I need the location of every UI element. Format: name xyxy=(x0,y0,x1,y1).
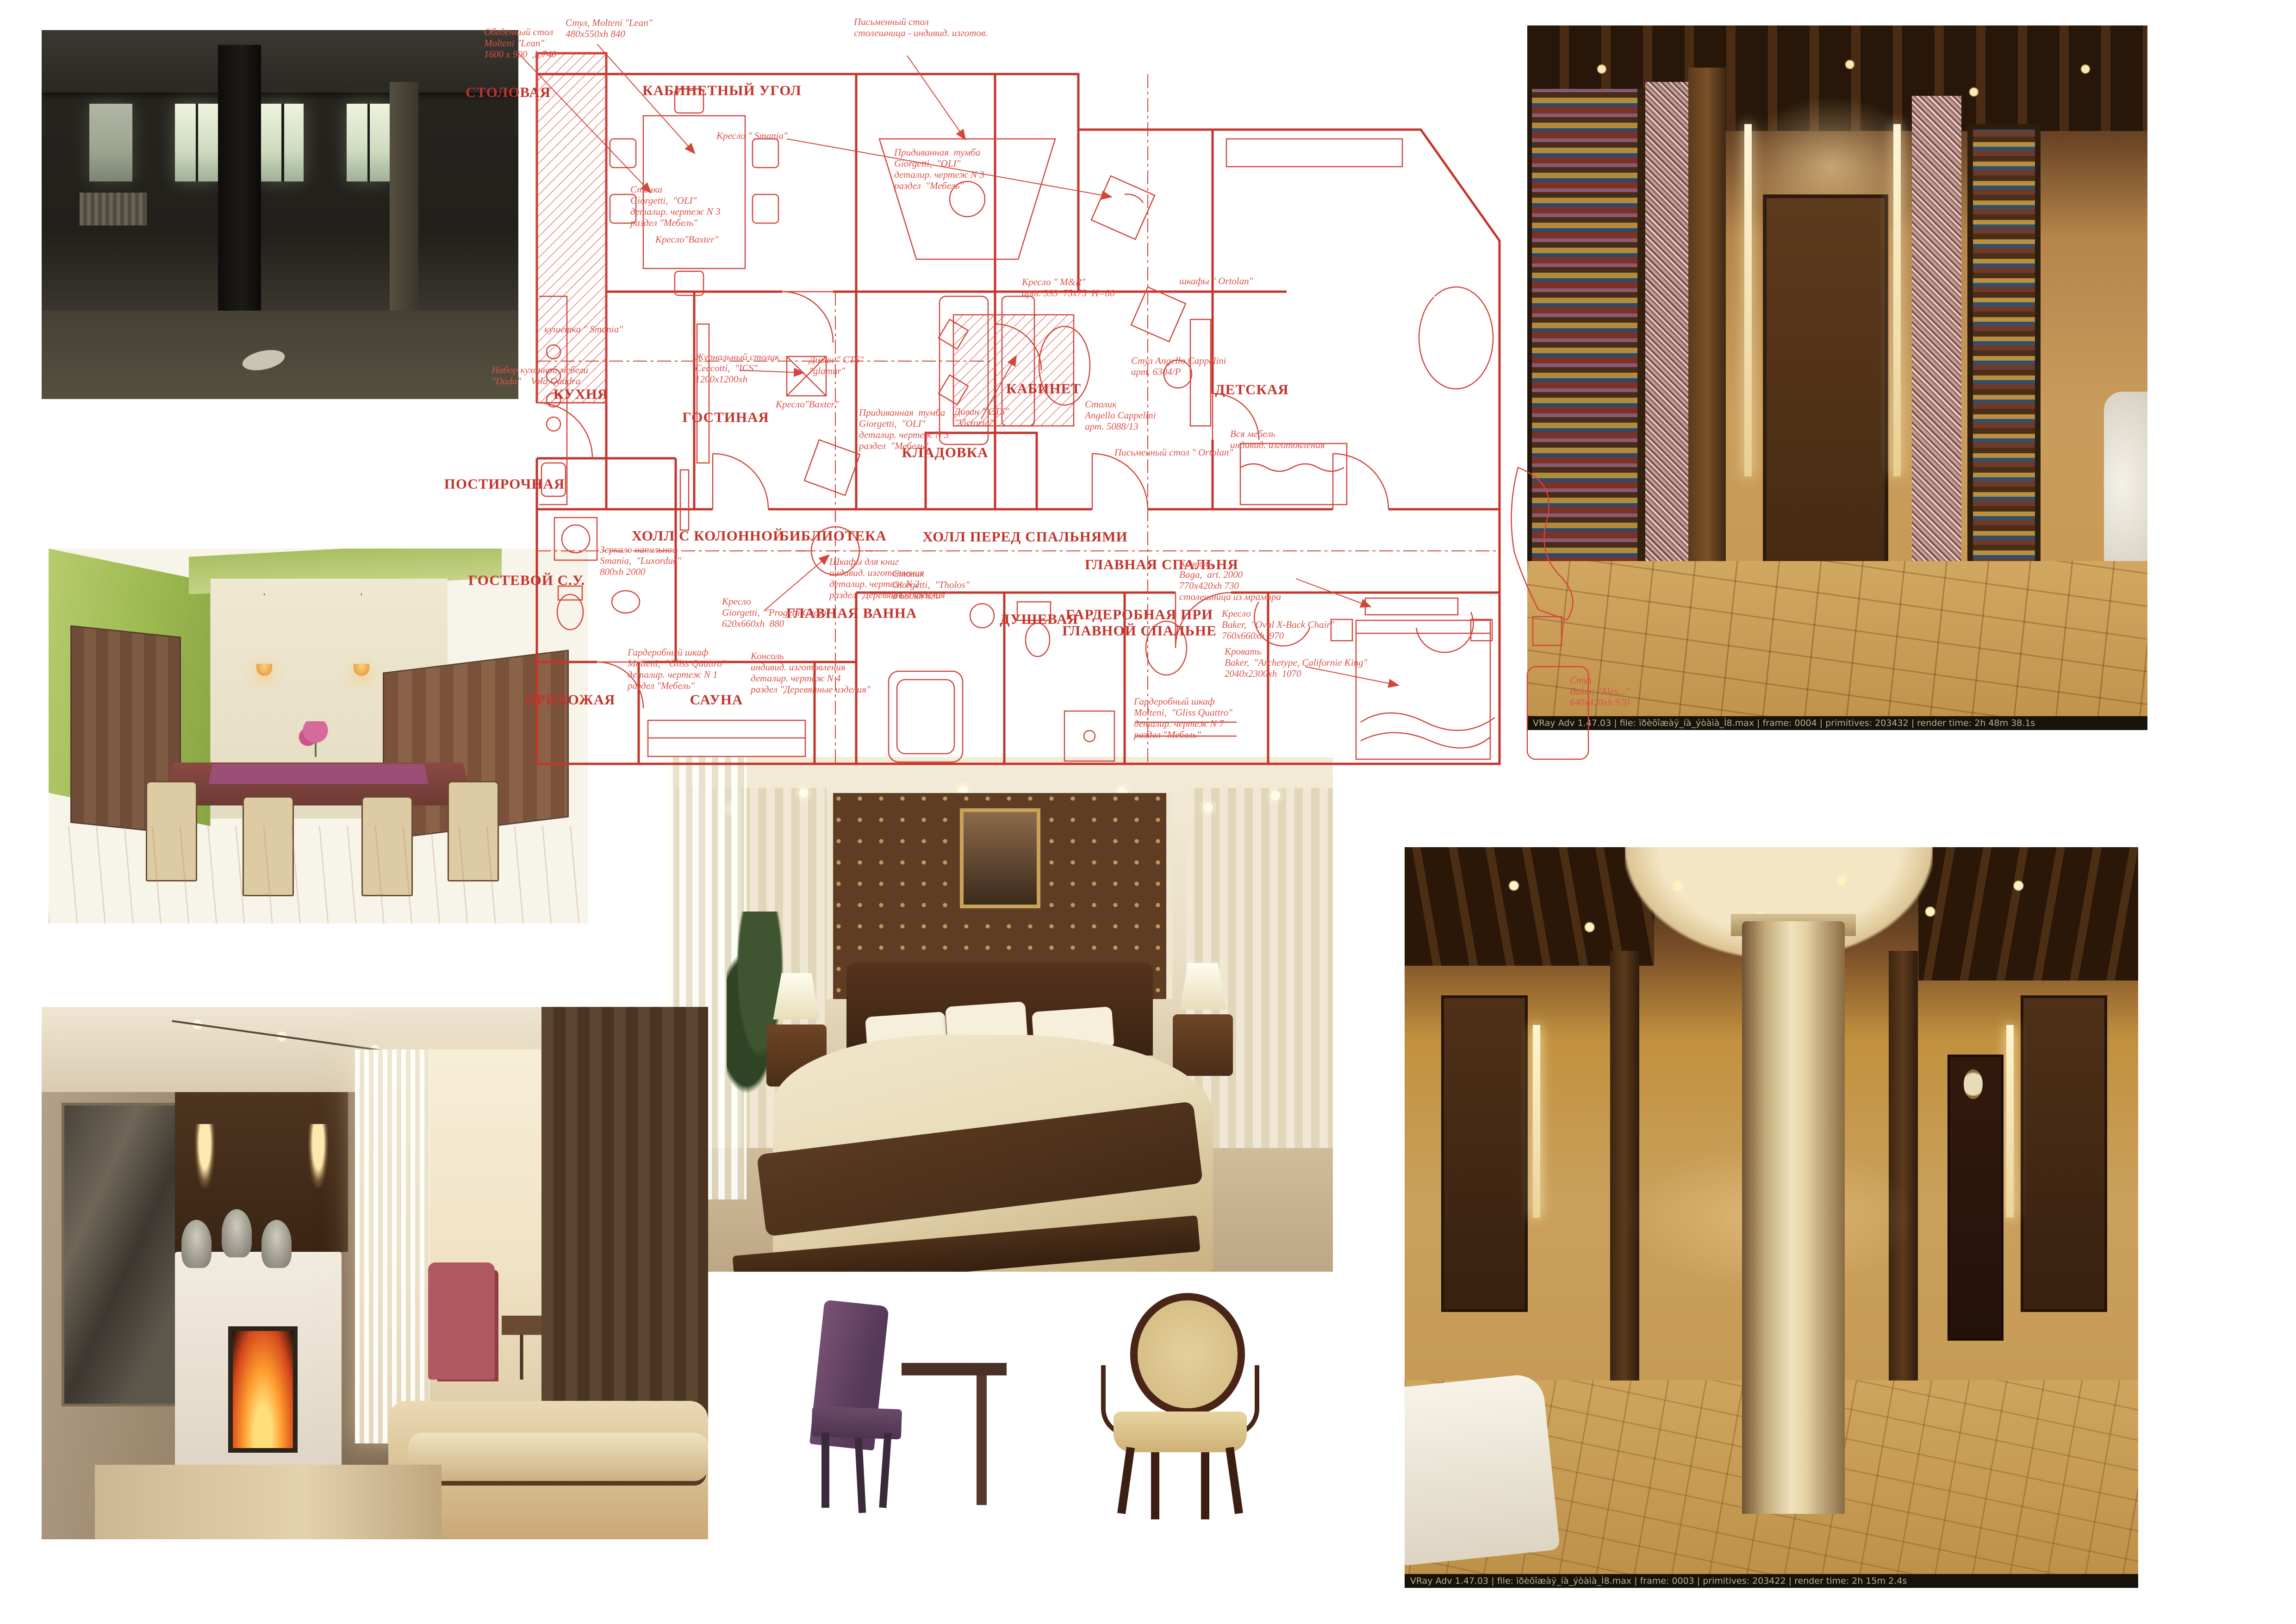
strip-light xyxy=(1744,124,1752,476)
sheer-curtain xyxy=(355,1049,429,1443)
construction-photo xyxy=(42,30,518,399)
bed-roll xyxy=(408,1433,708,1481)
hallway-render: VRay Adv 1.47.03 | file: ïðèõîæàÿ_íà_ýòà… xyxy=(1527,25,2147,730)
mantel-urn xyxy=(261,1220,292,1268)
firebox-flames xyxy=(228,1326,298,1453)
pendant-lamp xyxy=(350,593,372,676)
wood-door xyxy=(1763,194,1888,568)
vray-caption-bar: VRay Adv 1.47.03 | file: ïðèõîæàÿ_íà_ýòà… xyxy=(1527,716,2147,730)
clock-face xyxy=(1964,1069,1983,1099)
presentation-board: VRay Adv 1.47.03 | file: ïðèõîæàÿ_íà_ýòà… xyxy=(0,0,2296,1624)
mirror-wall xyxy=(62,1103,180,1406)
nightstand xyxy=(1173,1014,1233,1076)
window-mullion xyxy=(196,104,199,181)
white-sofa xyxy=(1405,1373,1560,1566)
table-top xyxy=(902,1363,1007,1375)
window xyxy=(261,104,304,181)
round-column xyxy=(1742,921,1845,1514)
sketch-flowers xyxy=(297,721,335,766)
framed-picture xyxy=(960,808,1040,908)
floor-plan-drawing xyxy=(465,13,1603,781)
oval-back-chair-product-photo xyxy=(1076,1278,1284,1535)
column-hall-render: VRay Adv 1.47.03 | file: ïðèõîæàÿ_íà_ýòà… xyxy=(1405,847,2138,1588)
sketch-table-runner xyxy=(208,764,428,784)
chair-leg xyxy=(821,1433,829,1508)
table-leg xyxy=(977,1375,987,1505)
chair-leg xyxy=(1117,1447,1135,1514)
pendant-lamp xyxy=(254,593,275,676)
purple-chair-product-photo xyxy=(757,1278,1007,1528)
window-mullion xyxy=(367,104,370,181)
bedroom-render xyxy=(666,757,1333,1272)
chair-leg xyxy=(1151,1452,1159,1519)
window xyxy=(347,104,390,181)
fireplace-bedroom-render xyxy=(42,1007,708,1539)
vray-caption: VRay Adv 1.47.03 | file: ïðèõîæàÿ_íà_ýòà… xyxy=(1410,1576,1907,1586)
bathtub xyxy=(2104,392,2147,575)
pink-armchair xyxy=(428,1262,495,1380)
radiator xyxy=(80,193,146,226)
bookshelf xyxy=(1967,124,2041,628)
chair-seat xyxy=(1114,1412,1247,1453)
mantel-urn xyxy=(222,1209,252,1257)
side-table xyxy=(502,1316,541,1380)
mantel-urn xyxy=(181,1220,212,1268)
vray-caption: VRay Adv 1.47.03 | file: ïðèõîæàÿ_íà_ýòà… xyxy=(1533,718,2035,728)
concrete-ceiling xyxy=(42,30,518,93)
strip-light xyxy=(1893,124,1901,476)
strip-light xyxy=(2006,1025,2014,1218)
chair-leg xyxy=(879,1432,891,1508)
plan-hatched-carpet xyxy=(953,315,1074,426)
window xyxy=(175,104,218,181)
balcony-opening xyxy=(355,1049,541,1443)
chair-leg xyxy=(1201,1452,1209,1519)
wall-sconce xyxy=(308,1124,328,1188)
window-mullion xyxy=(281,104,284,181)
wood-floor xyxy=(95,1465,442,1539)
chair-leg xyxy=(1226,1447,1243,1514)
wood-door xyxy=(1441,995,1527,1312)
window xyxy=(89,104,132,181)
sketch-floor-lines xyxy=(49,826,588,924)
vray-caption-bar: VRay Adv 1.47.03 | file: ïðèõîæàÿ_íà_ýòà… xyxy=(1405,1574,2138,1588)
wall-sconce xyxy=(195,1124,215,1188)
wood-door xyxy=(2021,995,2107,1312)
strip-light xyxy=(1533,1025,1540,1218)
stone-tile-floor xyxy=(1527,561,2147,716)
